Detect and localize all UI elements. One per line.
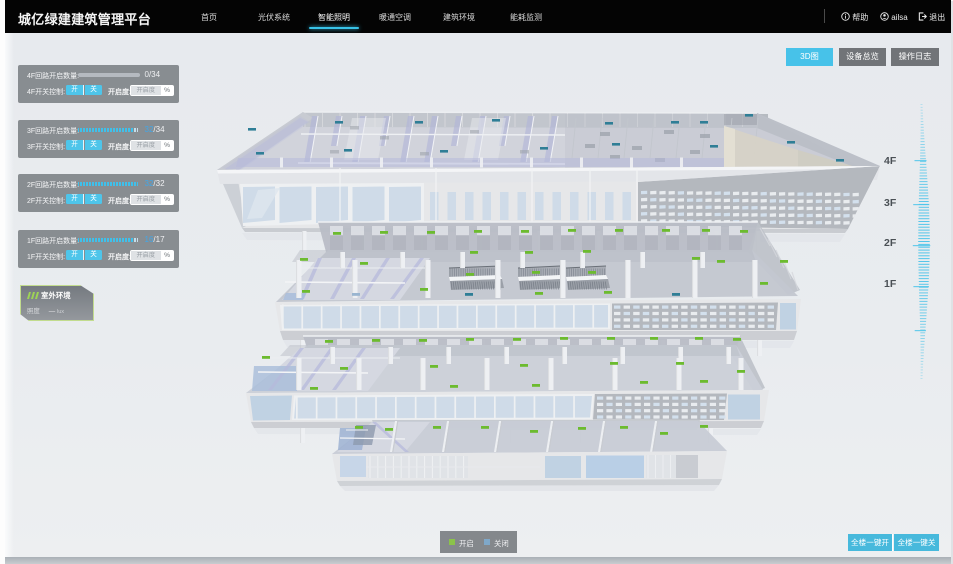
svg-text:1F: 1F [884, 278, 897, 290]
svg-text:2F: 2F [884, 237, 897, 249]
svg-text:3F: 3F [884, 197, 897, 209]
svg-text:4F: 4F [884, 155, 897, 167]
